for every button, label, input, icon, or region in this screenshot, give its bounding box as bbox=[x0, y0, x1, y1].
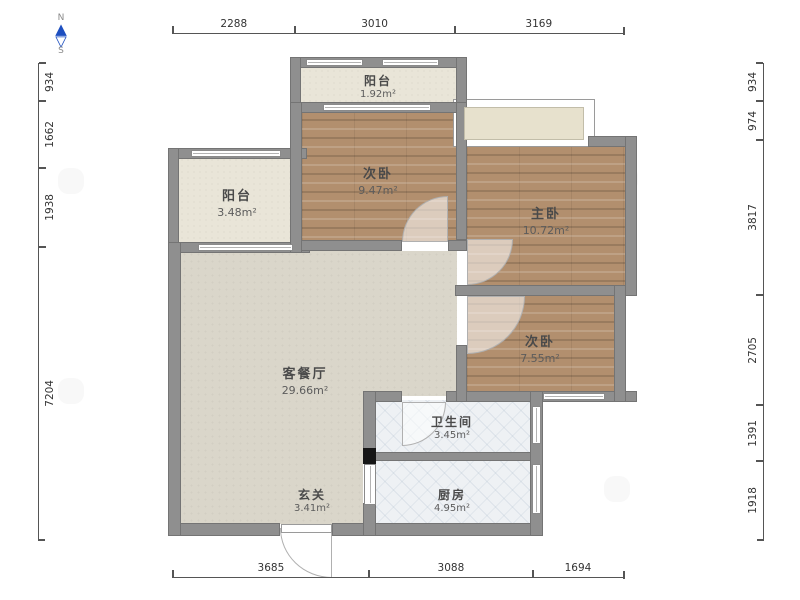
dimension-chain-right: 934 974 3817 2705 1391 1918 bbox=[742, 63, 764, 541]
room-name: 主卧 bbox=[523, 203, 570, 222]
room-label-bathroom: 卫生间 3.45m² bbox=[431, 413, 473, 441]
compass: N ▲ ▽ S bbox=[46, 14, 76, 56]
dimension-chain-left: 934 1662 1938 7204 bbox=[38, 63, 60, 541]
wall bbox=[614, 285, 626, 402]
wall bbox=[363, 452, 543, 461]
room-label-balcony-left: 阳台 3.48m² bbox=[217, 185, 257, 219]
dimension-value: 1694 bbox=[533, 558, 623, 578]
room-area: 3.45m² bbox=[431, 430, 473, 441]
dimension-value: 7204 bbox=[38, 247, 60, 539]
wall bbox=[168, 242, 181, 536]
kitchen-sliding-door bbox=[364, 464, 376, 505]
dimension-value: 3169 bbox=[455, 14, 623, 34]
room-label-entry: 玄关 3.41m² bbox=[294, 486, 330, 514]
room-name: 阳台 bbox=[360, 72, 396, 89]
watermark bbox=[604, 476, 630, 502]
balcony-top-window-right bbox=[382, 59, 439, 66]
balcony-left-window-top bbox=[191, 150, 281, 157]
compass-south-label: S bbox=[46, 47, 76, 56]
wall bbox=[290, 240, 402, 251]
dimension-value: 2705 bbox=[742, 295, 764, 405]
wall bbox=[456, 345, 467, 402]
wall bbox=[455, 285, 637, 296]
bathroom-window bbox=[532, 406, 541, 444]
dimension-value: 1391 bbox=[742, 405, 764, 461]
entry-door-leaf bbox=[281, 524, 332, 533]
dimension-value: 3010 bbox=[295, 14, 455, 34]
wall bbox=[168, 523, 280, 536]
watermark bbox=[58, 378, 84, 404]
room-name: 厨房 bbox=[434, 486, 470, 503]
room-name: 次卧 bbox=[358, 163, 398, 182]
dimension-chain-bottom: 3685 3088 1694 bbox=[173, 558, 625, 578]
master-bay-window-sill bbox=[464, 107, 584, 140]
wall bbox=[625, 136, 637, 296]
room-label-bedroom-top: 次卧 9.47m² bbox=[358, 163, 398, 197]
room-label-master-bedroom: 主卧 10.72m² bbox=[523, 203, 570, 237]
dimension-value: 974 bbox=[742, 101, 764, 141]
wall bbox=[363, 503, 376, 536]
room-area: 3.41m² bbox=[294, 503, 330, 514]
room-name: 卫生间 bbox=[431, 413, 473, 430]
wall bbox=[363, 391, 376, 452]
wall bbox=[168, 148, 179, 253]
room-area: 29.66m² bbox=[282, 384, 329, 397]
dimension-value: 2288 bbox=[173, 14, 295, 34]
room-name: 阳台 bbox=[217, 185, 257, 204]
room-label-living-dining: 客餐厅 29.66m² bbox=[282, 363, 329, 397]
dimension-value: 1662 bbox=[38, 101, 60, 168]
dimension-value: 934 bbox=[38, 63, 60, 101]
bedroom-top-balcony-window bbox=[323, 104, 431, 111]
dimension-value: 3817 bbox=[742, 140, 764, 295]
dimension-value: 3088 bbox=[369, 558, 533, 578]
room-name: 客餐厅 bbox=[282, 363, 329, 382]
dimension-value: 1938 bbox=[38, 168, 60, 247]
room-area: 4.95m² bbox=[434, 503, 470, 514]
dimension-value: 3685 bbox=[173, 558, 369, 578]
kitchen-window bbox=[532, 464, 541, 514]
room-label-balcony-top: 阳台 1.92m² bbox=[360, 72, 396, 100]
living-floor-lower bbox=[181, 391, 363, 524]
room-area: 7.55m² bbox=[520, 352, 560, 365]
bedroom-right-window bbox=[543, 393, 605, 400]
room-label-kitchen: 厨房 4.95m² bbox=[434, 486, 470, 514]
dimension-value: 1918 bbox=[742, 461, 764, 539]
room-area: 10.72m² bbox=[523, 224, 570, 237]
room-name: 次卧 bbox=[520, 331, 560, 350]
flue-block bbox=[363, 448, 376, 464]
dimension-chain-top: 2288 3010 3169 bbox=[173, 14, 625, 34]
room-label-bedroom-right: 次卧 7.55m² bbox=[520, 331, 560, 365]
room-name: 玄关 bbox=[294, 486, 330, 503]
balcony-left-window-bottom bbox=[198, 244, 293, 251]
room-area: 3.48m² bbox=[217, 206, 257, 219]
room-area: 9.47m² bbox=[358, 184, 398, 197]
dimension-value: 934 bbox=[742, 63, 764, 101]
room-area: 1.92m² bbox=[360, 89, 396, 100]
watermark bbox=[58, 168, 84, 194]
wall bbox=[290, 102, 302, 253]
wall bbox=[448, 240, 467, 251]
floorplan-page: { "compass": { "north": "N", "south": "S… bbox=[0, 0, 800, 600]
balcony-top-window-left bbox=[306, 59, 363, 66]
